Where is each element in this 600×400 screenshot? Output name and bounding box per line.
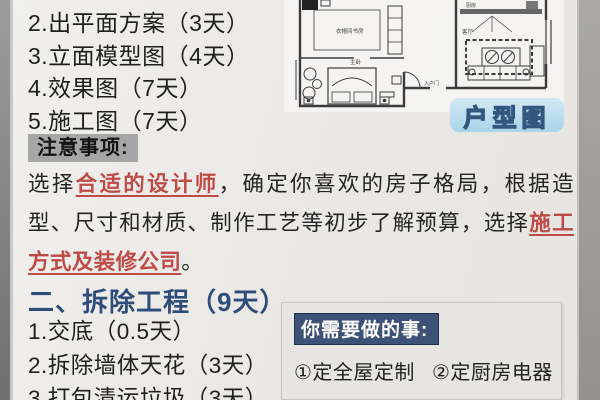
floor-plan-label-kitchen: 厨房 [466, 2, 476, 9]
todo-grid: ①定全屋定制 ②定厨房电器 ③防盗门 ④定门窗 [294, 356, 561, 400]
list-item: 1.交底（0.5天） [28, 315, 268, 349]
todo-item: ②定厨房电器 [432, 356, 561, 385]
notes-text: 选择 [28, 172, 76, 196]
design-phase-list: 2.出平面方案（3天） 3.立面模型图（4天） 4.效果图（7天） 5.施工图（… [28, 7, 249, 137]
photo-edge-left [0, 0, 13, 400]
list-item: 5.施工图（7天） [28, 105, 249, 138]
list-item: 3.打包清运垃圾（3天） [28, 382, 268, 400]
notes-text: 。 [181, 250, 203, 274]
todo-item: ①定全屋定制 [294, 356, 432, 385]
floor-plan-label-entry-door: 入户门 [424, 80, 439, 87]
floor-plan-caption: 户型图 [450, 98, 564, 132]
floor-plan: 衣帽间书房 主卧 客厅 厨房 入户门 户型图 [284, 0, 564, 140]
floor-plan-label-master-bedroom: 主卧 [350, 58, 362, 66]
list-item: 2.拆除墙体天花（3天） [28, 349, 268, 383]
floor-plan-label-study: 衣帽间书房 [336, 27, 364, 35]
demolition-list: 1.交底（0.5天） 2.拆除墙体天花（3天） 3.打包清运垃圾（3天） [28, 315, 268, 400]
list-item: 4.效果图（7天） [28, 72, 249, 105]
notes-title-badge: 注意事项: [28, 134, 138, 162]
section-title-demolition: 二、拆除工程（9天） [28, 282, 286, 319]
floor-plan-label-living-room: 客厅 [462, 28, 474, 36]
list-item: 3.立面模型图（4天） [28, 40, 249, 73]
notes-link-designer[interactable]: 合适的设计师 [76, 172, 219, 196]
photo-edge-right [577, 0, 600, 400]
todo-title-badge: 你需要做的事: [294, 313, 439, 345]
list-item: 2.出平面方案（3天） [28, 7, 249, 40]
notes-paragraph: 选择合适的设计师，确定你喜欢的房子格局，根据造型、尺寸和材质、制作工艺等初步了解… [28, 165, 574, 282]
todo-card: 你需要做的事: ①定全屋定制 ②定厨房电器 ③防盗门 ④定门窗 [281, 302, 562, 400]
